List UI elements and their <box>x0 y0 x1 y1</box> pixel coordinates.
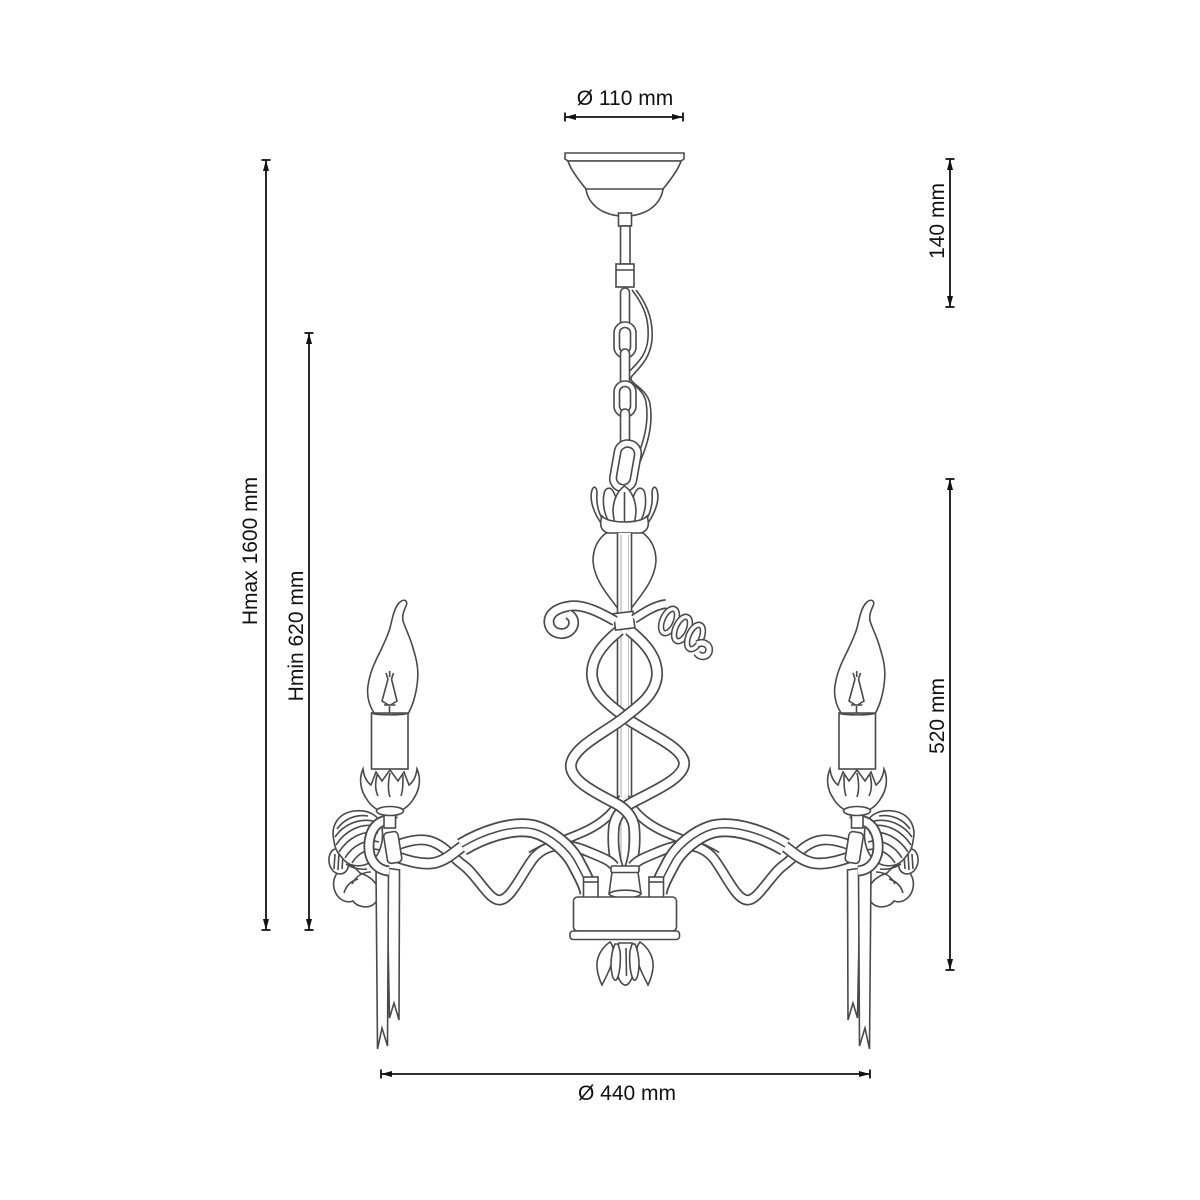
svg-text:Hmax 1600 mm: Hmax 1600 mm <box>239 477 262 625</box>
svg-text:Hmin 620 mm: Hmin 620 mm <box>285 571 308 702</box>
svg-text:Ø 440 mm: Ø 440 mm <box>578 1082 676 1105</box>
svg-text:140 mm: 140 mm <box>926 183 949 259</box>
svg-text:Ø 110 mm: Ø 110 mm <box>577 87 673 110</box>
svg-text:520 mm: 520 mm <box>926 678 949 754</box>
